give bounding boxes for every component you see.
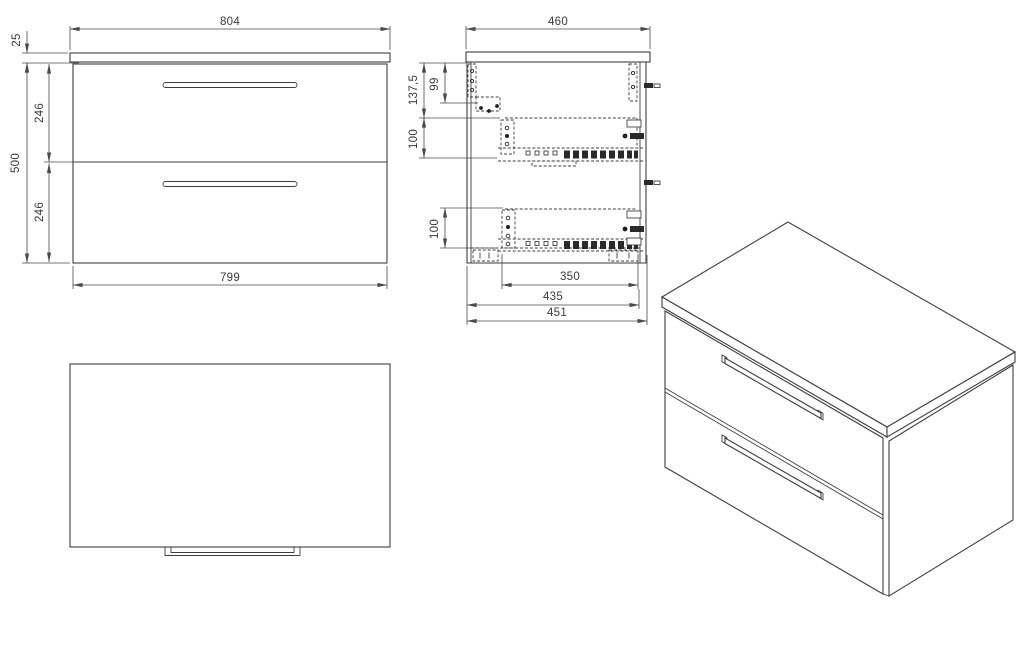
front-cabinet-body bbox=[73, 64, 387, 263]
lower-rail-fasteners bbox=[526, 241, 638, 249]
bottom-corner-fittings bbox=[473, 250, 638, 261]
dim-label: 435 bbox=[543, 291, 563, 303]
plan-handle-inner bbox=[171, 547, 294, 553]
technical-drawing-sheet: 804 25 500 246 246 799 bbox=[0, 0, 1024, 650]
corner-fitting-left bbox=[473, 250, 498, 261]
dim-label: 460 bbox=[548, 16, 568, 28]
dim-label: 246 bbox=[34, 103, 46, 123]
dim-width-top: 804 bbox=[70, 16, 390, 50]
front-countertop bbox=[70, 53, 390, 62]
dim-countertop-thickness: 25 bbox=[11, 31, 79, 71]
side-view: 460 137,5 99 100 100 350 bbox=[408, 16, 660, 325]
perspective-view bbox=[662, 222, 1015, 596]
fixing-bolt-lower bbox=[644, 180, 653, 185]
front-view: 804 25 500 246 246 799 bbox=[10, 16, 390, 289]
mount-rail-back bbox=[629, 64, 637, 101]
dim-label: 25 bbox=[11, 33, 23, 46]
dim-label: 500 bbox=[10, 153, 22, 173]
side-countertop bbox=[466, 52, 650, 62]
fixing-bolt-upper bbox=[644, 83, 653, 88]
dim-label: 804 bbox=[220, 16, 240, 28]
dim-depth-carcass: 451 bbox=[467, 255, 647, 325]
upper-rail-fasteners bbox=[526, 151, 638, 159]
dim-depth-top: 460 bbox=[466, 16, 650, 49]
dim-label: 799 bbox=[220, 272, 240, 284]
dim-drawer-lower: 246 bbox=[34, 164, 49, 263]
vanity-cabinet-drawing: 804 25 500 246 246 799 bbox=[0, 0, 1024, 650]
wall-mount-rails bbox=[468, 64, 637, 101]
dim-label: 246 bbox=[34, 202, 46, 222]
iso-bottom-corner bbox=[883, 594, 889, 596]
dim-drawer-upper: 246 bbox=[34, 64, 75, 162]
corner-fitting-right bbox=[609, 250, 638, 261]
soft-close-mechanism bbox=[476, 97, 500, 113]
plan-countertop-outline bbox=[70, 364, 390, 547]
dim-slide-offset-lower: 100 bbox=[429, 208, 503, 248]
dim-fixing-offset: 137,5 bbox=[408, 63, 500, 118]
dim-slide-offset-upper: 100 bbox=[408, 118, 497, 158]
dim-label: 137,5 bbox=[408, 75, 420, 105]
wall-fixing-bolts bbox=[623, 83, 660, 245]
plan-view bbox=[70, 364, 390, 556]
plan-handle-outer bbox=[165, 547, 300, 556]
dim-label: 100 bbox=[408, 129, 420, 149]
dim-width-carcass: 799 bbox=[73, 266, 387, 289]
dim-label: 100 bbox=[429, 219, 441, 239]
dim-height-total: 500 bbox=[10, 63, 70, 263]
dim-label: 451 bbox=[547, 307, 567, 319]
upper-drawer-hidden bbox=[498, 118, 645, 166]
dim-label: 99 bbox=[429, 77, 441, 90]
mount-rail-front bbox=[468, 64, 476, 97]
dim-label: 350 bbox=[560, 271, 580, 283]
